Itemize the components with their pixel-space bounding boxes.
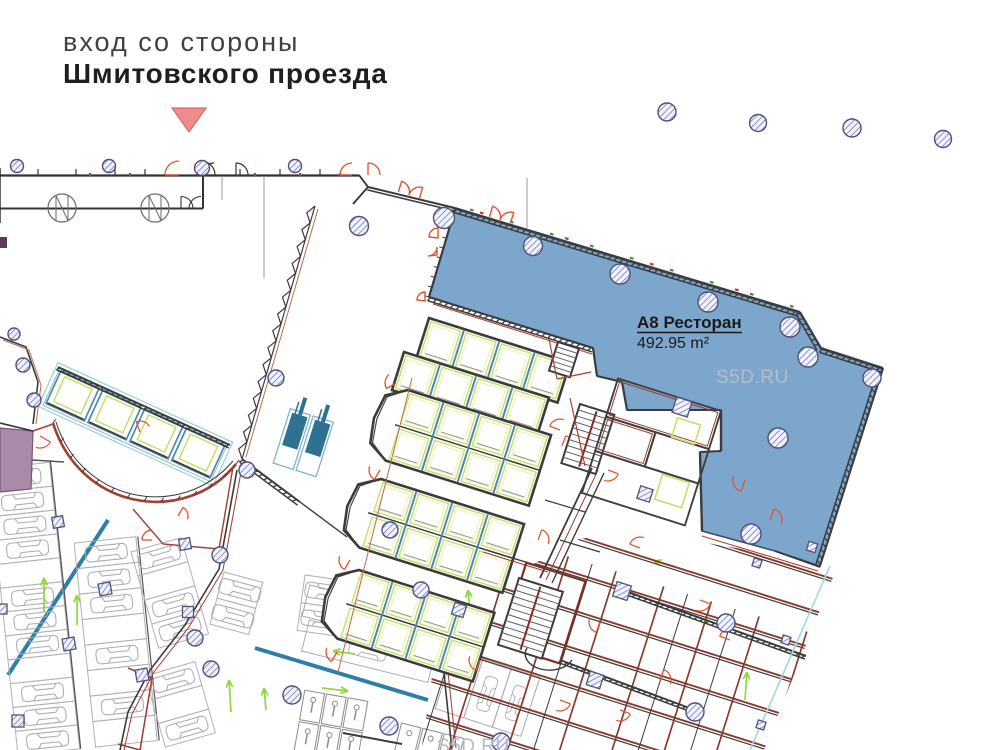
svg-text:S5D.RU: S5D.RU	[437, 736, 510, 750]
svg-text:вход со стороны: вход со стороны	[63, 27, 299, 57]
svg-text:S5D.RU: S5D.RU	[716, 367, 789, 388]
svg-text:А8 Ресторан: А8 Ресторан	[637, 313, 742, 332]
svg-text:Шмитовского проезда: Шмитовского проезда	[63, 58, 388, 89]
svg-text:492.95 m²: 492.95 m²	[637, 335, 710, 352]
